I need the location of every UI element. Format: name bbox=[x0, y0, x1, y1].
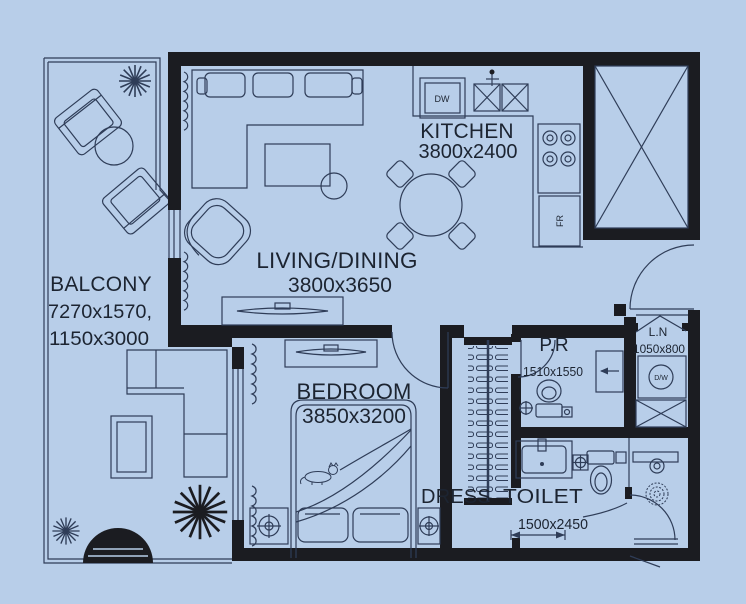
living-dining-label: LIVING/DINING bbox=[256, 248, 417, 273]
fridge-label: FR bbox=[555, 215, 565, 227]
dishwasher-label: DW bbox=[435, 94, 450, 104]
powder-room-label: P.R bbox=[539, 335, 568, 356]
bedroom-label: BEDROOM bbox=[296, 379, 411, 404]
dress-label: DRESS bbox=[421, 486, 491, 508]
powder-room-dims: 1510x1550 bbox=[523, 364, 583, 379]
toilet-label: TOILET bbox=[503, 486, 583, 508]
linen-label: L.N bbox=[649, 325, 668, 339]
plant-icon bbox=[119, 65, 151, 97]
wardrobe-hangers bbox=[468, 346, 487, 498]
linen-dims: 1050x800 bbox=[633, 342, 685, 356]
plant-icon bbox=[173, 485, 227, 539]
toilet-dims: 1500x2450 bbox=[518, 516, 588, 533]
balcony-dims-2: 1150x3000 bbox=[49, 329, 149, 350]
floor-plan-canvas: BALCONY 7270x1570, 1150x3000 bbox=[0, 0, 746, 604]
wardrobe-hangers bbox=[489, 346, 508, 498]
bedroom-dims: 3850x3200 bbox=[302, 405, 406, 428]
floor-plan: BALCONY 7270x1570, 1150x3000 bbox=[0, 0, 746, 604]
washer-dryer-label: D/W bbox=[654, 375, 668, 382]
balcony-dims-1: 7270x1570, bbox=[48, 302, 152, 323]
kitchen-dims: 3800x2400 bbox=[419, 141, 518, 163]
balcony-label: BALCONY bbox=[50, 273, 152, 296]
kitchen-label: KITCHEN bbox=[420, 120, 514, 143]
living-dining-dims: 3800x3650 bbox=[288, 274, 392, 297]
plant-icon bbox=[52, 517, 79, 544]
